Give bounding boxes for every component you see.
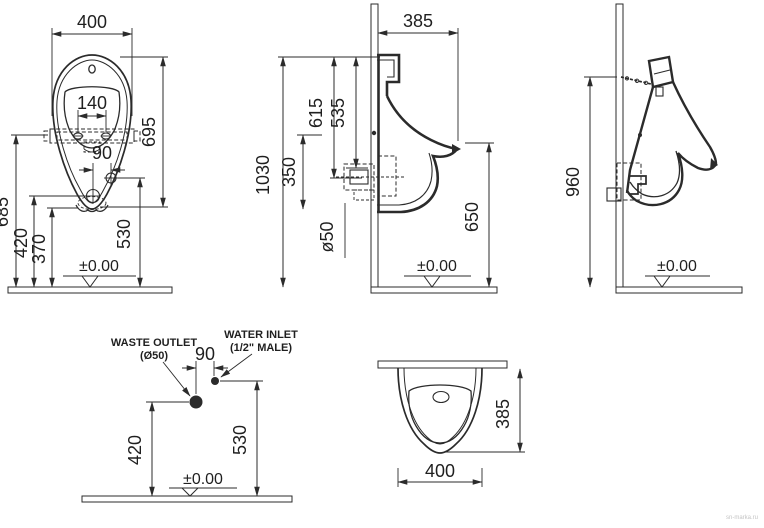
perspective-datum-label: ±0.00 <box>657 258 697 275</box>
dim-side-top-to-inlet: 535 <box>328 98 348 128</box>
dim-side-depth: 385 <box>403 11 433 31</box>
side-section-view: 385 1030 615 535 350 ø50 650 ±0.00 <box>253 4 497 293</box>
plan-view: 385 400 <box>378 361 525 487</box>
datum-triangle-icon <box>424 276 440 287</box>
waste-outlet-leader <box>163 362 190 396</box>
watermark: sn-marka.ru <box>726 515 758 521</box>
water-inlet-size-label: (1/2" MALE) <box>230 342 292 354</box>
datum-triangle-icon <box>654 276 670 287</box>
fixing-bolt <box>372 131 376 135</box>
urinal-plan-outline <box>398 368 482 453</box>
water-inlet-leader <box>221 354 252 377</box>
side-fixing-detail <box>336 131 404 200</box>
urinal-installation-drawing: 400 140 90 695 685 420 370 530 ±0.00 <box>0 0 764 528</box>
dim-front-bottom-height: 370 <box>29 234 49 264</box>
connection-datum-label: ±0.00 <box>183 471 223 488</box>
side-datum-label: ±0.00 <box>417 258 457 275</box>
datum-triangle-icon <box>82 276 98 287</box>
floor-line <box>371 287 497 293</box>
urinal-side-outline <box>377 55 461 212</box>
front-datum-symbol <box>63 276 136 287</box>
floor-line <box>8 287 172 293</box>
dim-side-rim-height: 650 <box>462 202 482 232</box>
wall-section <box>616 4 623 287</box>
rim-tip <box>452 144 461 154</box>
water-inlet-point <box>211 377 219 385</box>
front-datum-label: ±0.00 <box>79 258 119 275</box>
dim-plan-depth: 385 <box>493 399 513 429</box>
basin-opening <box>409 385 471 443</box>
floor-line <box>82 496 292 502</box>
connection-view: WASTE OUTLET (Ø50) WATER INLET (1/2" MAL… <box>82 329 298 502</box>
dim-side-top-to-outlet: 615 <box>306 98 326 128</box>
dim-connection-outlet-height: 420 <box>125 435 145 465</box>
dim-front-bracket-height: 685 <box>0 197 12 227</box>
hanger-bolt <box>656 87 663 96</box>
technical-drawing-sheet: 400 140 90 695 685 420 370 530 ±0.00 <box>0 0 764 528</box>
fixing-bolt <box>638 133 642 137</box>
dim-front-bolt-spacing: 140 <box>77 93 107 113</box>
dim-connection-offset: 90 <box>195 344 215 364</box>
front-view: 400 140 90 695 685 420 370 530 ±0.00 <box>0 12 172 293</box>
dim-plan-width: 400 <box>425 461 455 481</box>
hanging-chain <box>621 77 651 85</box>
waste-outlet-mark <box>85 188 101 204</box>
side-datum-symbol <box>404 276 471 287</box>
dim-connection-inlet-height: 530 <box>230 425 250 455</box>
dim-front-outlet-height: 420 <box>11 228 31 258</box>
dim-front-inlet-offset: 90 <box>92 143 112 163</box>
dim-side-outlet-diameter: ø50 <box>317 221 337 252</box>
datum-triangle-icon <box>182 488 198 496</box>
overflow-hole <box>89 65 95 73</box>
dim-front-inlet-height: 530 <box>114 219 134 249</box>
connection-datum-symbol <box>169 488 237 496</box>
dim-front-width: 400 <box>77 12 107 32</box>
waste-outlet-size-label: (Ø50) <box>140 350 168 362</box>
dim-side-overall-height: 1030 <box>253 155 273 195</box>
dim-hanger-height: 960 <box>563 167 583 197</box>
wall-section <box>378 361 507 368</box>
inlet-spud <box>433 392 449 403</box>
water-inlet-label: WATER INLET <box>224 329 298 341</box>
wall-section <box>371 4 378 287</box>
tilted-fixing-detail <box>607 163 646 201</box>
dim-side-mid-span: 350 <box>279 157 299 187</box>
perspective-datum-symbol <box>645 276 710 287</box>
floor-line <box>616 287 742 293</box>
waste-outlet-label: WASTE OUTLET <box>111 337 197 349</box>
perspective-view: 960 ±0.00 <box>563 4 742 293</box>
waste-outlet-point <box>190 396 203 409</box>
dim-front-height: 695 <box>139 117 159 147</box>
connection-extension-lines <box>146 361 263 402</box>
